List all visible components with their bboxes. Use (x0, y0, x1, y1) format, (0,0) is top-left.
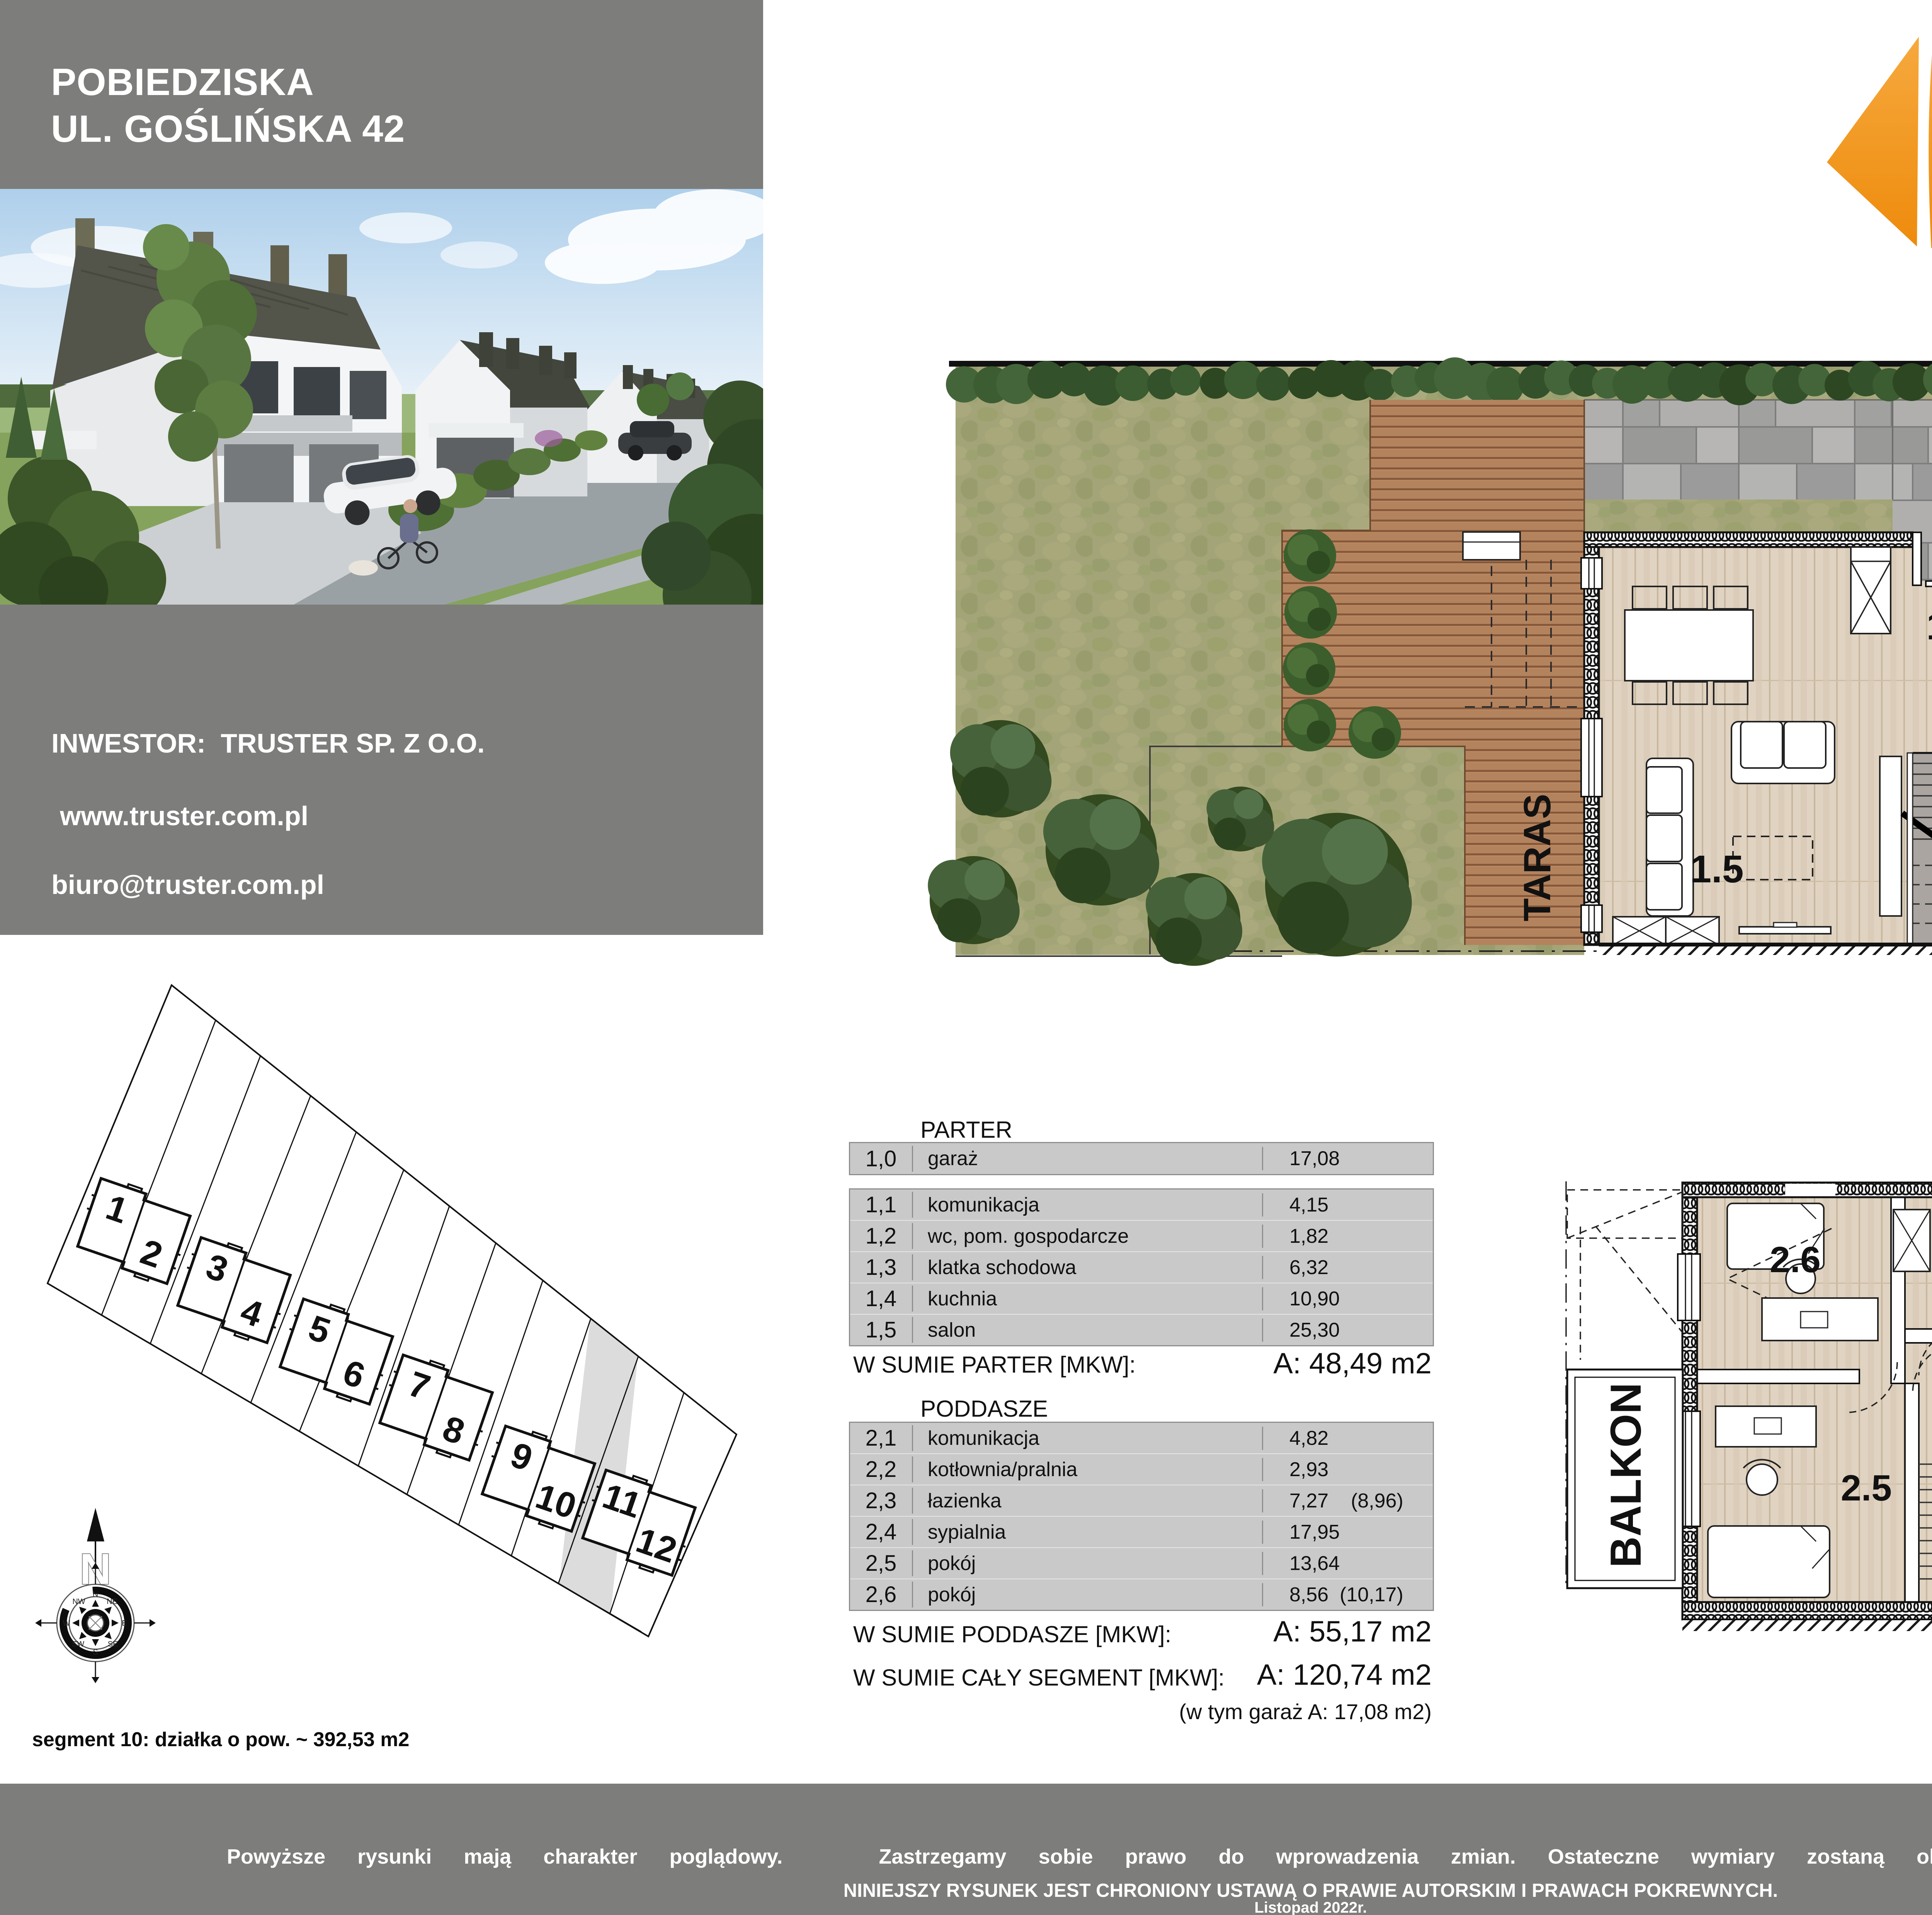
svg-text:1.1: 1.1 (1926, 605, 1932, 648)
svg-text:SW: SW (72, 1640, 84, 1648)
svg-text:N: N (93, 1590, 98, 1599)
svg-text:E: E (122, 1619, 127, 1628)
svg-text:BALKON: BALKON (1602, 1383, 1650, 1568)
svg-text:W: W (63, 1619, 70, 1628)
svg-text:1.5: 1.5 (1690, 848, 1743, 891)
svg-text:SE: SE (108, 1640, 118, 1648)
svg-text:TARAS: TARAS (1516, 794, 1558, 921)
svg-text:2.6: 2.6 (1770, 1239, 1821, 1280)
svg-text:NE: NE (107, 1597, 117, 1606)
svg-text:2.5: 2.5 (1841, 1468, 1892, 1509)
svg-text:NW: NW (72, 1597, 85, 1606)
svg-text:S: S (93, 1648, 98, 1657)
